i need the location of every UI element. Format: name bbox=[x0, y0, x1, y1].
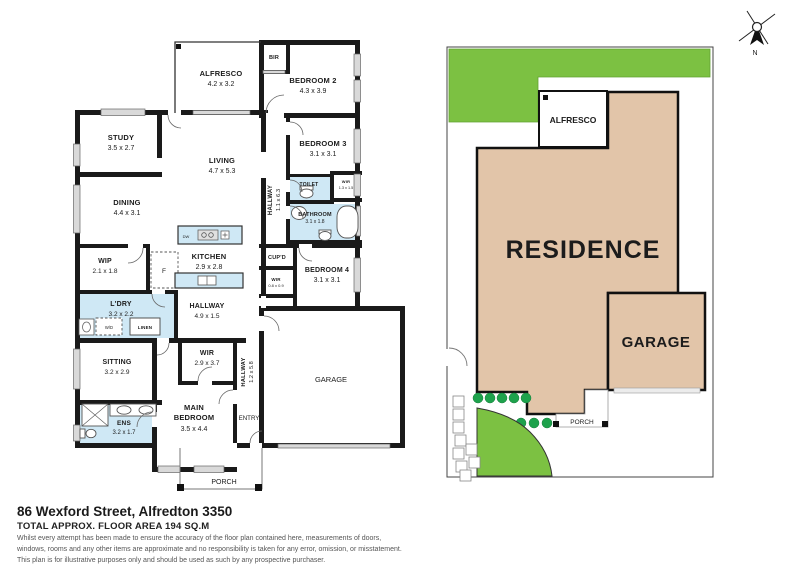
disclaimer: Whilst every attempt has been made to en… bbox=[17, 534, 402, 566]
label-hallway-entry: HALLWAY bbox=[241, 357, 247, 386]
label-bedroom2-dims: 4.3 x 3.9 bbox=[300, 88, 327, 95]
site-label-garage: GARAGE bbox=[622, 334, 691, 351]
label-dining: DINING bbox=[113, 198, 140, 207]
label-garage: GARAGE bbox=[315, 375, 347, 384]
label-study-dims: 3.5 x 2.7 bbox=[108, 145, 135, 152]
driveway-strip bbox=[614, 388, 700, 393]
label-toilet: TOILET bbox=[300, 182, 319, 188]
label-main-bedroom-1: MAIN bbox=[184, 403, 204, 412]
label-wd: W/D bbox=[105, 325, 113, 330]
label-hallway-upper-dims: 1.1 x 6.3 bbox=[276, 189, 282, 211]
label-sitting: SITTING bbox=[102, 359, 131, 366]
site-plan: RESIDENCE GARAGE ALFRESCO PORCH bbox=[444, 47, 713, 481]
label-laundry: L'DRY bbox=[110, 301, 132, 308]
kitchen-bench bbox=[175, 273, 243, 288]
label-cupd: CUP'D bbox=[268, 255, 286, 261]
compass: N bbox=[739, 11, 775, 57]
site-label-porch: PORCH bbox=[570, 419, 594, 426]
label-sitting-dims: 3.2 x 2.9 bbox=[105, 369, 130, 376]
floor-plan-page: ALFRESCO 4.2 x 3.2 BIR BEDROOM 2 4.3 x 3… bbox=[0, 0, 800, 566]
label-wir-small-dims: 1.3 x 1.5 bbox=[339, 186, 354, 190]
label-wir-small: WIR bbox=[342, 179, 350, 184]
label-main-bedroom-2: BEDROOM bbox=[174, 413, 215, 422]
label-hallway-upper: HALLWAY bbox=[268, 185, 274, 215]
label-wir-hall: WIR bbox=[271, 277, 281, 282]
label-bedroom3-dims: 3.1 x 3.1 bbox=[310, 151, 337, 158]
disclaimer-line-2: windows, rooms and any other items are a… bbox=[17, 545, 402, 556]
compass-north-label: N bbox=[752, 50, 757, 57]
label-bir: BIR bbox=[269, 55, 279, 61]
label-kitchen: KITCHEN bbox=[192, 252, 227, 261]
floor-area-text: TOTAL APPROX. FLOOR AREA 194 SQ.M bbox=[17, 521, 209, 532]
label-porch: PORCH bbox=[211, 479, 236, 486]
label-linen: LINEN bbox=[138, 325, 153, 330]
label-hallway-mid: HALLWAY bbox=[190, 303, 225, 310]
label-alfresco: ALFRESCO bbox=[200, 69, 243, 78]
label-dining-dims: 4.4 x 3.1 bbox=[114, 210, 141, 217]
label-bathroom-dims: 3.1 x 1.8 bbox=[305, 219, 324, 225]
plan-canvas: ALFRESCO 4.2 x 3.2 BIR BEDROOM 2 4.3 x 3… bbox=[0, 0, 800, 566]
label-wir-main: WIR bbox=[200, 350, 214, 357]
label-main-bedroom-dims: 3.5 x 4.4 bbox=[181, 426, 208, 433]
label-living: LIVING bbox=[209, 156, 235, 165]
label-bedroom3: BEDROOM 3 bbox=[299, 139, 346, 148]
label-hallway-mid-dims: 4.9 x 1.5 bbox=[195, 313, 220, 320]
label-hallway-entry-dims: 1.2 x 5.8 bbox=[249, 361, 255, 382]
site-label-alfresco: ALFRESCO bbox=[550, 115, 597, 125]
label-bedroom4-dims: 3.1 x 3.1 bbox=[314, 277, 341, 284]
label-bathroom: BATHROOM bbox=[298, 212, 332, 218]
label-alfresco-dims: 4.2 x 3.2 bbox=[208, 81, 235, 88]
label-laundry-dims: 3.2 x 2.2 bbox=[109, 311, 134, 318]
label-wip-dims: 2.1 x 1.8 bbox=[93, 268, 118, 275]
label-fridge: F bbox=[162, 268, 166, 275]
floor-plan: ALFRESCO 4.2 x 3.2 BIR BEDROOM 2 4.3 x 3… bbox=[74, 40, 406, 491]
garden-bed bbox=[477, 408, 552, 476]
label-bedroom4: BEDROOM 4 bbox=[305, 267, 349, 274]
disclaimer-line-1: Whilst every attempt has been made to en… bbox=[17, 534, 402, 545]
site-gate bbox=[444, 348, 467, 366]
label-wir-hall-dims: 0.8 x 0.9 bbox=[268, 283, 284, 288]
label-wir-main-dims: 2.9 x 3.7 bbox=[195, 360, 220, 367]
label-bedroom2: BEDROOM 2 bbox=[289, 76, 336, 85]
label-wip: WIP bbox=[98, 258, 112, 265]
label-dishwasher: DW bbox=[183, 234, 190, 239]
label-study: STUDY bbox=[108, 133, 134, 142]
label-living-dims: 4.7 x 5.3 bbox=[209, 168, 236, 175]
label-entry: ENTRY bbox=[239, 415, 260, 422]
disclaimer-line-3: This plan is for illustrative purposes o… bbox=[17, 556, 402, 566]
stepping-stones bbox=[453, 396, 480, 481]
site-label-residence: RESIDENCE bbox=[506, 236, 661, 264]
property-address: 86 Wexford Street, Alfredton 3350 bbox=[17, 504, 232, 519]
label-ens: ENS bbox=[117, 420, 131, 427]
label-kitchen-dims: 2.9 x 2.8 bbox=[196, 264, 223, 271]
label-ens-dims: 3.2 x 1.7 bbox=[112, 430, 136, 436]
